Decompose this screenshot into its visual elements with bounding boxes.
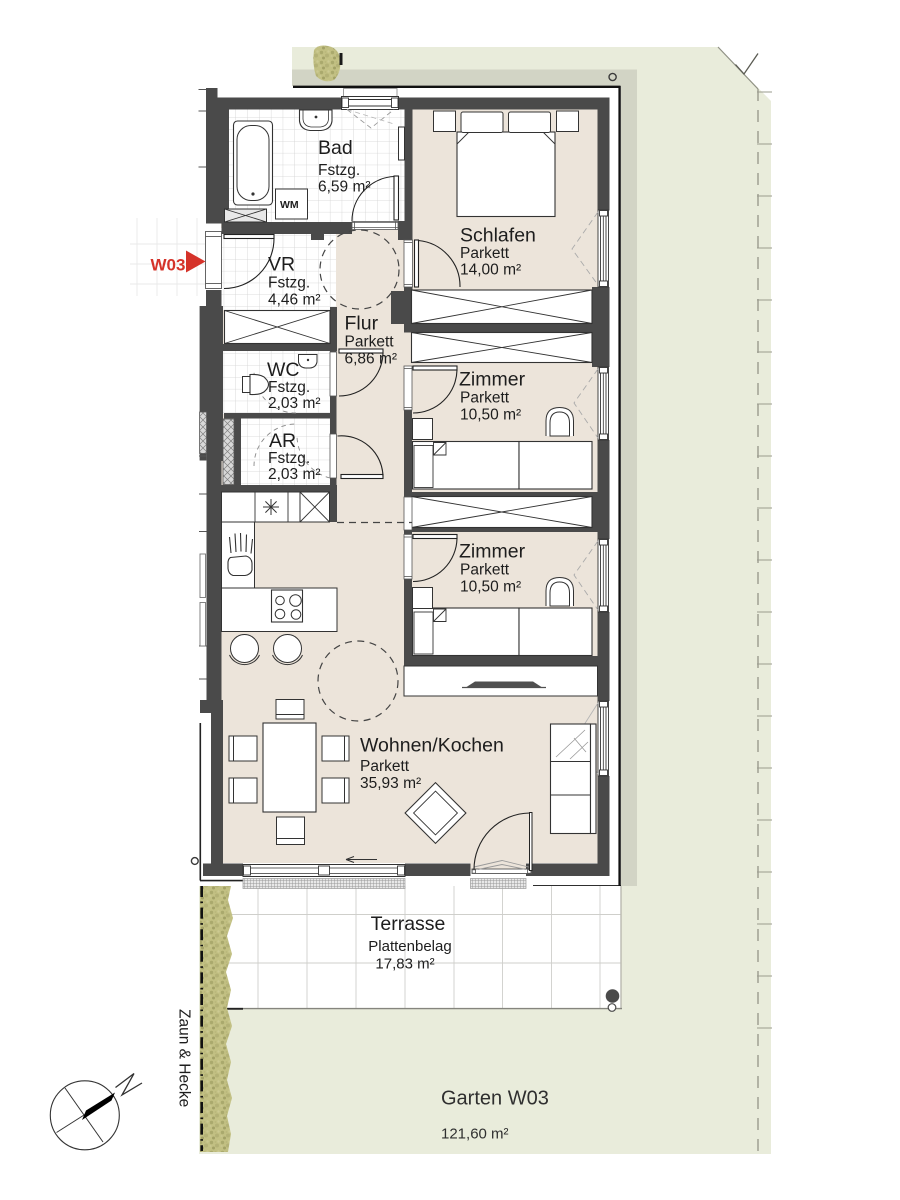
svg-text:35,93 m²: 35,93 m² [360, 775, 421, 792]
svg-text:Wohnen/Kochen: Wohnen/Kochen [360, 735, 504, 757]
svg-text:2,03 m²: 2,03 m² [268, 466, 321, 483]
svg-text:VR: VR [268, 254, 295, 276]
svg-text:6,59 m²: 6,59 m² [318, 179, 371, 196]
svg-text:Flur: Flur [345, 313, 379, 335]
svg-text:Zimmer: Zimmer [459, 369, 526, 391]
svg-text:10,50 m²: 10,50 m² [460, 407, 521, 424]
svg-text:WM: WM [280, 199, 299, 211]
svg-text:121,60 m²: 121,60 m² [441, 1126, 509, 1143]
svg-text:Parkett: Parkett [460, 390, 510, 407]
svg-text:4,46 m²: 4,46 m² [268, 292, 321, 309]
svg-text:Bad: Bad [318, 137, 353, 159]
svg-text:WC: WC [267, 359, 300, 381]
svg-text:Parkett: Parkett [360, 758, 410, 775]
svg-text:Fstzg.: Fstzg. [268, 450, 310, 467]
svg-text:Plattenbelag: Plattenbelag [368, 938, 451, 955]
svg-text:10,50 m²: 10,50 m² [460, 579, 521, 596]
svg-text:Terrasse: Terrasse [371, 913, 446, 935]
svg-text:Fstzg.: Fstzg. [268, 379, 310, 396]
svg-text:Parkett: Parkett [345, 334, 395, 351]
svg-text:W03: W03 [151, 256, 186, 275]
svg-text:6,86 m²: 6,86 m² [345, 351, 398, 368]
svg-text:Fstzg.: Fstzg. [318, 162, 360, 179]
svg-text:17,83 m²: 17,83 m² [375, 956, 434, 973]
svg-text:2,03 m²: 2,03 m² [268, 395, 321, 412]
svg-text:AR: AR [269, 430, 296, 452]
svg-text:Fstzg.: Fstzg. [268, 275, 310, 292]
svg-text:Garten W03: Garten W03 [441, 1088, 549, 1110]
svg-text:14,00 m²: 14,00 m² [460, 262, 521, 279]
svg-text:Zaun & Hecke: Zaun & Hecke [176, 1009, 193, 1107]
svg-text:Parkett: Parkett [460, 562, 510, 579]
svg-text:Zimmer: Zimmer [459, 541, 526, 563]
svg-text:Parkett: Parkett [460, 245, 510, 262]
svg-text:Schlafen: Schlafen [460, 225, 536, 247]
